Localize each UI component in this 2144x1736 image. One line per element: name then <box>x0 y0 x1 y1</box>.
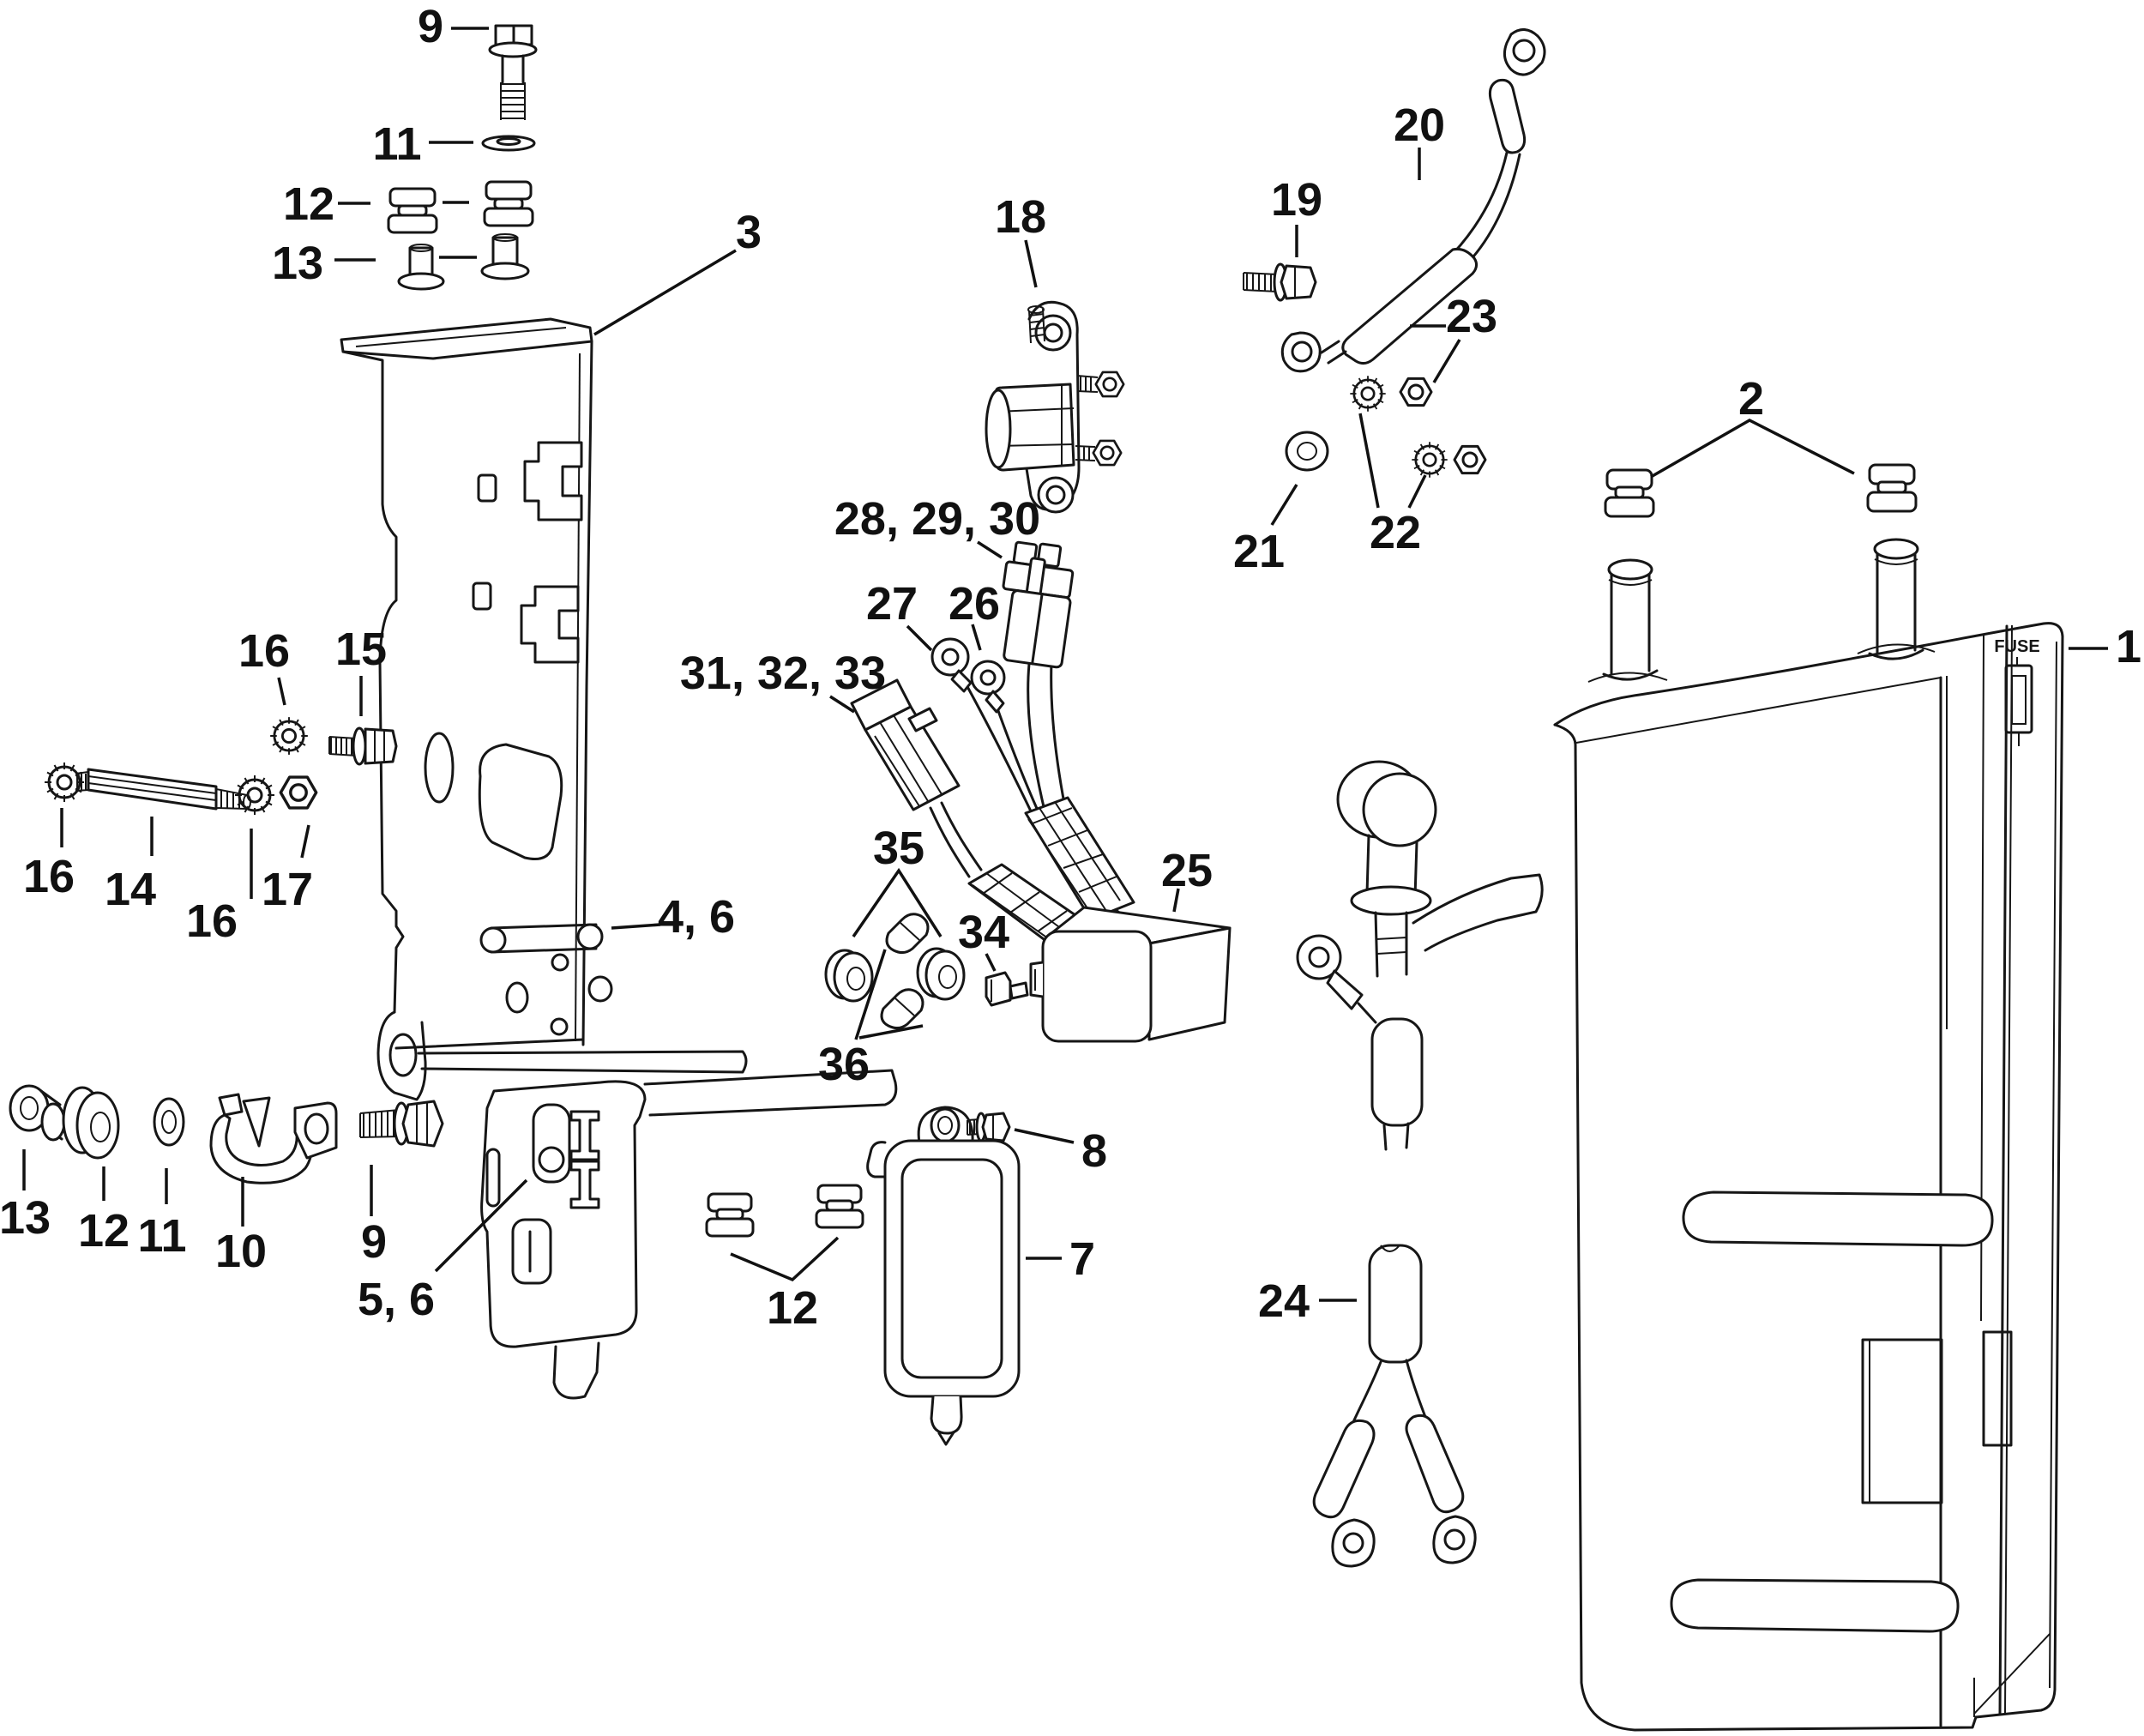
star-washer-16-c <box>270 717 308 755</box>
part-plate-4-6 <box>481 925 602 952</box>
callout-leader <box>731 1238 838 1280</box>
callout-leader <box>302 825 309 858</box>
callout-number: 13 <box>272 238 323 289</box>
star-washer-22-a <box>1350 376 1385 411</box>
callout-number: 21 <box>1233 526 1285 577</box>
callout-9-top: 9 <box>418 1 489 52</box>
part-cable-24 <box>1298 762 1542 1566</box>
callout-number: 2 <box>1738 373 1764 425</box>
callout-9-mid: 9 <box>361 1165 387 1268</box>
part-bolt-15 <box>329 728 396 764</box>
callout-11-top: 11 <box>372 118 473 170</box>
part-cover-1: FUSE <box>1555 539 2063 1730</box>
callout-19: 19 <box>1271 174 1322 257</box>
part-relay-25 <box>1031 907 1230 1041</box>
callout-leader <box>1026 240 1036 287</box>
callout-leader <box>1651 420 1854 477</box>
part-ring-terminal-27 <box>932 639 971 691</box>
part-grommet-12-top-a <box>388 189 437 232</box>
callout-10: 10 <box>215 1177 267 1277</box>
callout-leader <box>1272 485 1297 525</box>
part-plug-35-a <box>887 914 928 953</box>
callout-number: 20 <box>1394 99 1445 151</box>
callout-number: 28, 29, 30 <box>834 493 1040 545</box>
part-grommet-36-a <box>826 950 872 1001</box>
callout-number: 1 <box>2116 621 2141 672</box>
callout-leader <box>907 626 931 650</box>
part-grommet-12-bot <box>63 1088 118 1158</box>
callout-number: 16 <box>23 851 75 902</box>
callout-number: 16 <box>186 895 238 947</box>
callout-8: 8 <box>1015 1125 1107 1177</box>
callout-1: 1 <box>2069 621 2141 672</box>
nut-23-b <box>1454 446 1485 473</box>
part-plug-35-b <box>882 990 923 1028</box>
part-clip-34 <box>986 973 1027 1005</box>
callout-14: 14 <box>105 817 156 915</box>
callout-number: 10 <box>215 1226 267 1277</box>
part-bracket-3 <box>341 319 746 1100</box>
callout-12-mid: 12 <box>731 1238 838 1334</box>
callout-number: 19 <box>1271 174 1322 226</box>
part-connector-28-29-30 <box>993 539 1078 668</box>
part-bushing-13-top-b <box>482 234 528 279</box>
nut-23-a <box>1400 378 1431 405</box>
part-bracket-5-6 <box>482 1070 896 1398</box>
callout-leader <box>1015 1130 1074 1142</box>
diagram-canvas: FUSE 911121331819202321222128, 29, 30272… <box>0 0 2144 1736</box>
callout-12-top: 12 <box>283 178 469 230</box>
callout-number: 16 <box>238 625 290 677</box>
callout-leader <box>594 250 736 335</box>
callout-16-c: 16 <box>238 625 290 705</box>
callout-4-6: 4, 6 <box>611 891 735 943</box>
part-connector-31-32-33 <box>852 680 959 810</box>
callout-number: 18 <box>995 191 1046 243</box>
callout-number: 24 <box>1258 1275 1310 1327</box>
callout-28-29-30: 28, 29, 30 <box>834 493 1040 558</box>
callout-number: 23 <box>1446 291 1497 342</box>
part-grommet-2-a <box>1605 470 1653 516</box>
part-bushing-13-bot <box>10 1086 64 1140</box>
callout-16-b: 16 <box>186 829 251 947</box>
callout-number: 3 <box>736 207 762 258</box>
callout-35: 35 <box>853 823 941 937</box>
callout-number: 12 <box>283 178 334 230</box>
part-grommet-12-top-b <box>485 182 533 226</box>
callout-leader <box>1360 413 1378 508</box>
part-bolt-19 <box>1244 264 1316 300</box>
nut-17 <box>280 777 316 808</box>
part-washer-21 <box>1286 432 1328 470</box>
callout-number: 11 <box>137 1210 186 1262</box>
callout-number: 4, 6 <box>658 891 735 943</box>
callout-3: 3 <box>594 207 762 335</box>
diagram-page: FUSE 911121331819202321222128, 29, 30272… <box>0 0 2144 1736</box>
callout-number: 22 <box>1370 507 1421 558</box>
part-clamp-10 <box>211 1094 336 1183</box>
callout-number: 31, 32, 33 <box>680 648 886 699</box>
part-bushing-13-top-a <box>399 244 443 289</box>
fuse-label: FUSE <box>1994 637 2039 656</box>
callout-number: 12 <box>78 1205 129 1257</box>
part-grommet-12-mid-b <box>816 1185 863 1227</box>
part-grommet-2-b <box>1868 465 1916 511</box>
callout-number: 9 <box>361 1216 387 1268</box>
callout-13-top: 13 <box>272 238 477 289</box>
callout-13-bot: 13 <box>0 1149 51 1244</box>
callout-number: 36 <box>818 1039 870 1090</box>
callout-number: 25 <box>1161 845 1213 896</box>
callout-number: 17 <box>262 864 313 915</box>
callout-leader <box>1409 475 1425 508</box>
fuse-icon <box>2006 657 2032 746</box>
callout-number: 34 <box>958 907 1009 958</box>
callout-number: 12 <box>767 1282 818 1334</box>
callout-12-bot: 12 <box>78 1166 129 1257</box>
callout-number: 9 <box>418 1 443 52</box>
part-spacer-14 <box>75 769 250 809</box>
part-module-7 <box>868 1107 1019 1444</box>
callout-leader <box>611 925 660 928</box>
callout-22: 22 <box>1360 413 1425 558</box>
callout-20: 20 <box>1394 99 1445 180</box>
part-washer-11-bot <box>154 1099 184 1145</box>
callout-7: 7 <box>1026 1233 1095 1285</box>
callout-number: 13 <box>0 1192 51 1244</box>
part-grommet-36-b <box>918 949 964 999</box>
part-bolt-9-mid <box>360 1101 443 1146</box>
callout-24: 24 <box>1258 1275 1357 1327</box>
star-washer-22-b <box>1412 442 1447 477</box>
callout-17: 17 <box>262 825 313 915</box>
callout-11-bot: 11 <box>137 1168 186 1262</box>
part-grommet-12-mid-a <box>707 1194 753 1236</box>
callout-number: 26 <box>949 578 1000 630</box>
callout-number: 5, 6 <box>358 1274 435 1325</box>
callout-leader <box>1434 340 1460 383</box>
callout-number: 27 <box>866 578 918 630</box>
callout-number: 7 <box>1069 1233 1095 1285</box>
callout-18: 18 <box>995 191 1046 287</box>
callout-number: 11 <box>372 118 421 170</box>
part-bolt-9-top <box>490 26 536 120</box>
part-solenoid-18 <box>986 302 1123 512</box>
callout-number: 14 <box>105 864 156 915</box>
callout-number: 35 <box>873 823 924 874</box>
part-washer-11-top <box>483 136 534 150</box>
callout-number: 15 <box>335 624 387 675</box>
callout-34: 34 <box>958 907 1009 971</box>
callout-number: 8 <box>1081 1125 1107 1177</box>
callout-2: 2 <box>1651 373 1854 477</box>
callout-16-a: 16 <box>23 808 75 902</box>
callout-27: 27 <box>866 578 931 650</box>
callout-leader <box>279 678 285 705</box>
callout-21: 21 <box>1233 485 1297 577</box>
star-washer-16-a <box>45 763 84 802</box>
callout-25: 25 <box>1161 845 1213 912</box>
